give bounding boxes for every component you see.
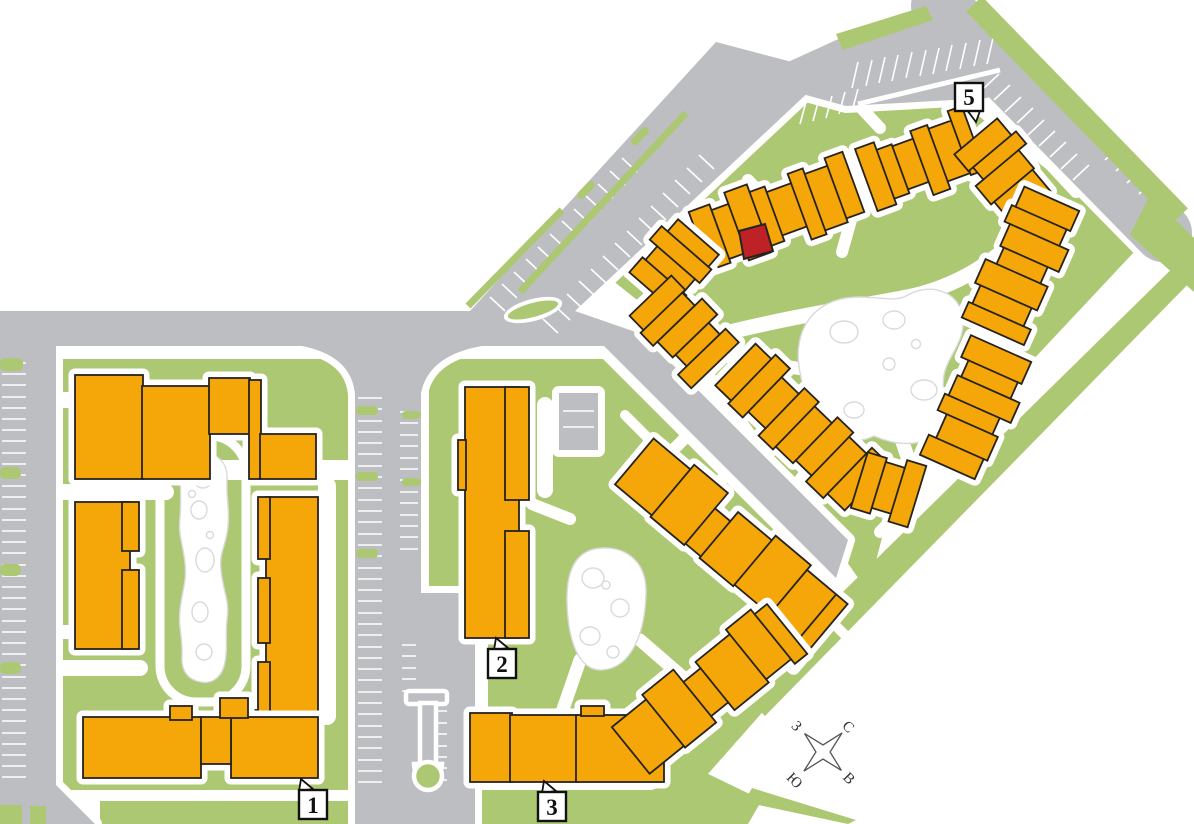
svg-text:1: 1 bbox=[307, 793, 319, 818]
svg-text:5: 5 bbox=[963, 85, 975, 110]
svg-text:3: 3 bbox=[546, 795, 558, 820]
svg-text:2: 2 bbox=[496, 652, 508, 677]
